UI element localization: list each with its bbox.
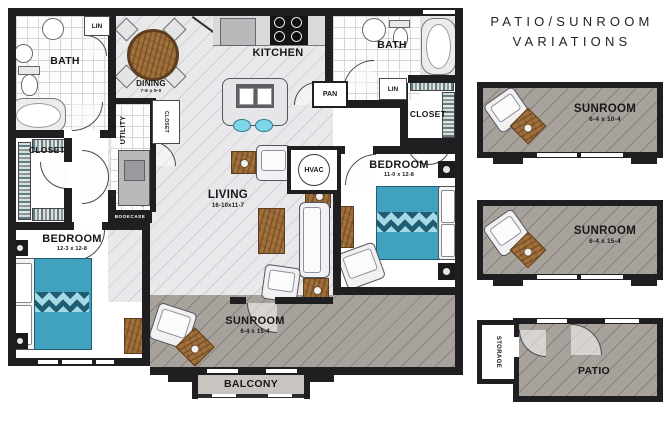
island-sink bbox=[236, 84, 274, 108]
wall-segment bbox=[142, 230, 150, 358]
wall-segment bbox=[631, 152, 657, 164]
lin-left-label: LIN bbox=[92, 23, 102, 30]
patio-room: PATIO bbox=[513, 318, 663, 402]
bath-left-label: BATH bbox=[38, 56, 92, 67]
window bbox=[38, 360, 58, 364]
variation-label: PATIO bbox=[559, 366, 629, 377]
bed-blanket-zigzag bbox=[35, 292, 89, 312]
room-label-dining: DINING 7-8 x 9-0 bbox=[125, 80, 177, 94]
pillow bbox=[15, 263, 32, 303]
wall-segment bbox=[8, 130, 64, 138]
panel-title-line1: PATIO/SUNROOM bbox=[478, 12, 666, 32]
sunroom-small-label: SUNROOM bbox=[559, 104, 651, 116]
wall-segment bbox=[108, 98, 156, 104]
sink-icon bbox=[14, 44, 33, 63]
sunroom-label: SUNROOM bbox=[203, 316, 307, 327]
wall-segment bbox=[400, 138, 455, 146]
bookcase-label: BOOKCASE bbox=[115, 214, 146, 219]
hall-closet-label: CLOSET bbox=[163, 111, 169, 133]
sink-icon bbox=[42, 18, 64, 40]
room-label-living: LIVING 16-10x11-7 bbox=[186, 190, 270, 209]
speaker-icon bbox=[438, 263, 455, 280]
patio-label: PATIO bbox=[559, 366, 629, 377]
room-label-bedroom-right: BEDROOM 11-0 x 12-8 bbox=[360, 160, 438, 178]
wall-segment bbox=[8, 16, 16, 366]
bathtub bbox=[10, 98, 66, 133]
bar-stool bbox=[233, 119, 251, 132]
refrigerator bbox=[220, 18, 256, 46]
wall-segment bbox=[306, 367, 334, 382]
coffee-table bbox=[258, 208, 285, 254]
room-label-utility: UTILITY bbox=[120, 107, 132, 153]
window bbox=[605, 319, 639, 323]
bookcase-bar: BOOKCASE bbox=[108, 210, 152, 223]
wall-segment bbox=[373, 146, 455, 154]
room-label-balcony: BALCONY bbox=[211, 379, 291, 390]
window bbox=[537, 275, 577, 279]
sofa bbox=[299, 202, 330, 278]
balcony-wall bbox=[304, 375, 310, 399]
door-arc-hall-b bbox=[82, 177, 109, 204]
window bbox=[266, 369, 297, 373]
variation-patio: STORAGE PATIO bbox=[477, 318, 663, 403]
bedroom-right-dims: 11-0 x 12-8 bbox=[360, 173, 438, 179]
hall-closet: CLOSET bbox=[152, 100, 180, 144]
room-label-kitchen: KITCHEN bbox=[235, 48, 321, 59]
sunroom-large-dims: 6-4 x 15-4 bbox=[559, 239, 651, 246]
sunroom-dims: 6-4 x 15-4 bbox=[203, 329, 307, 335]
storage-label: STORAGE bbox=[495, 336, 501, 368]
bedroom-left-label: BEDROOM bbox=[28, 234, 116, 245]
variation-label: SUNROOM 6-4 x 10-4 bbox=[559, 104, 651, 124]
bath-right-label: BATH bbox=[368, 40, 416, 51]
armchair bbox=[256, 145, 291, 181]
burner-icon bbox=[274, 31, 285, 42]
door-arc-hall-a bbox=[82, 150, 109, 177]
room-label-bath-right: BATH bbox=[368, 40, 416, 51]
wall-segment bbox=[408, 75, 455, 83]
dining-dims: 7-8 x 9-0 bbox=[125, 90, 177, 95]
wall-segment bbox=[275, 297, 333, 304]
sunroom-large-label: SUNROOM bbox=[559, 226, 651, 238]
bar-stool bbox=[255, 119, 273, 132]
panel-title: PATIO/SUNROOM VARIATIONS bbox=[478, 12, 666, 52]
window bbox=[212, 394, 236, 397]
dining-label: DINING bbox=[125, 80, 177, 88]
bedroom-left-dims: 12-3 x 12-8 bbox=[28, 247, 116, 253]
wall-segment bbox=[8, 222, 74, 230]
wall-segment bbox=[64, 188, 72, 222]
closet-left-label: CLOSET bbox=[22, 146, 72, 155]
pillow bbox=[441, 224, 455, 257]
variation-sunroom-large: SUNROOM 6-4 x 15-4 bbox=[477, 200, 663, 280]
door-arc-storage bbox=[519, 330, 546, 357]
pillow bbox=[441, 190, 455, 223]
door-opening bbox=[514, 337, 519, 357]
living-label: LIVING bbox=[186, 190, 270, 202]
sink-basin bbox=[239, 88, 254, 105]
panel-title-line2: VARIATIONS bbox=[478, 32, 666, 52]
speaker-icon bbox=[438, 161, 455, 178]
utility-label: UTILITY bbox=[120, 107, 127, 153]
room-label-sunroom: SUNROOM 6-4 x 15-4 bbox=[203, 316, 307, 335]
door-arc-closet-left bbox=[40, 162, 67, 189]
window bbox=[537, 153, 577, 157]
burner-icon bbox=[291, 31, 302, 42]
window bbox=[581, 153, 623, 157]
clothes-rack bbox=[32, 208, 66, 221]
wall-segment bbox=[631, 274, 657, 286]
window bbox=[423, 10, 455, 14]
side-table bbox=[231, 151, 256, 174]
toilet-bowl bbox=[21, 74, 38, 96]
storage-room: STORAGE bbox=[477, 320, 519, 384]
window bbox=[96, 360, 114, 364]
wall-segment bbox=[333, 287, 455, 295]
wall-segment bbox=[230, 297, 246, 304]
washer-dryer bbox=[118, 150, 150, 206]
wall-segment bbox=[100, 130, 116, 138]
room-label-bedroom-left: BEDROOM 12-3 x 12-8 bbox=[28, 234, 116, 252]
bed-blanket-zigzag bbox=[377, 212, 437, 232]
window bbox=[62, 360, 92, 364]
wall-segment bbox=[102, 222, 150, 230]
closet-right-label: CLOSET bbox=[403, 110, 453, 119]
pantry: PAN bbox=[312, 81, 348, 108]
room-label-closet-left: CLOSET bbox=[22, 146, 72, 155]
tub-basin bbox=[426, 24, 451, 69]
kitchen-label: KITCHEN bbox=[235, 48, 321, 59]
wall-segment bbox=[493, 152, 523, 164]
hvac-unit: HVAC bbox=[287, 146, 341, 194]
window bbox=[581, 275, 623, 279]
balcony-label: BALCONY bbox=[211, 379, 291, 390]
window bbox=[268, 394, 292, 397]
wall-segment bbox=[8, 8, 463, 16]
variation-sunroom-small: SUNROOM 6-4 x 10-4 bbox=[477, 82, 663, 158]
linen-closet-left: LIN bbox=[84, 16, 110, 36]
room-label-closet-right: CLOSET bbox=[403, 110, 453, 119]
storage-label-wrap: STORAGE bbox=[492, 330, 504, 374]
wall-segment bbox=[455, 16, 463, 375]
stove bbox=[270, 14, 308, 45]
window bbox=[207, 369, 238, 373]
pantry-label: PAN bbox=[323, 91, 337, 98]
living-dims: 16-10x11-7 bbox=[186, 203, 270, 209]
lin-right-label: LIN bbox=[388, 86, 398, 93]
wood-rug bbox=[124, 318, 144, 354]
room-label-bath-left: BATH bbox=[38, 56, 92, 67]
washer-drum bbox=[124, 160, 145, 181]
sunroom-small-dims: 6-4 x 10-4 bbox=[559, 117, 651, 124]
door-arc-patio bbox=[571, 324, 602, 355]
burner-icon bbox=[274, 17, 285, 28]
tub-basin bbox=[16, 103, 61, 128]
bathtub bbox=[421, 18, 456, 75]
wall-segment bbox=[493, 274, 523, 286]
window bbox=[537, 319, 567, 323]
dining-table bbox=[127, 29, 179, 81]
floorplan-canvas: BOOKCASE LIN CLOSET PAN LIN HVAC BATH bbox=[0, 0, 670, 423]
variation-label: SUNROOM 6-4 x 15-4 bbox=[559, 226, 651, 246]
sink-basin bbox=[257, 88, 272, 105]
burner-icon bbox=[291, 17, 302, 28]
linen-closet-right: LIN bbox=[379, 78, 407, 100]
hvac-label: HVAC bbox=[298, 154, 330, 186]
bedroom-right-label: BEDROOM bbox=[360, 160, 438, 171]
